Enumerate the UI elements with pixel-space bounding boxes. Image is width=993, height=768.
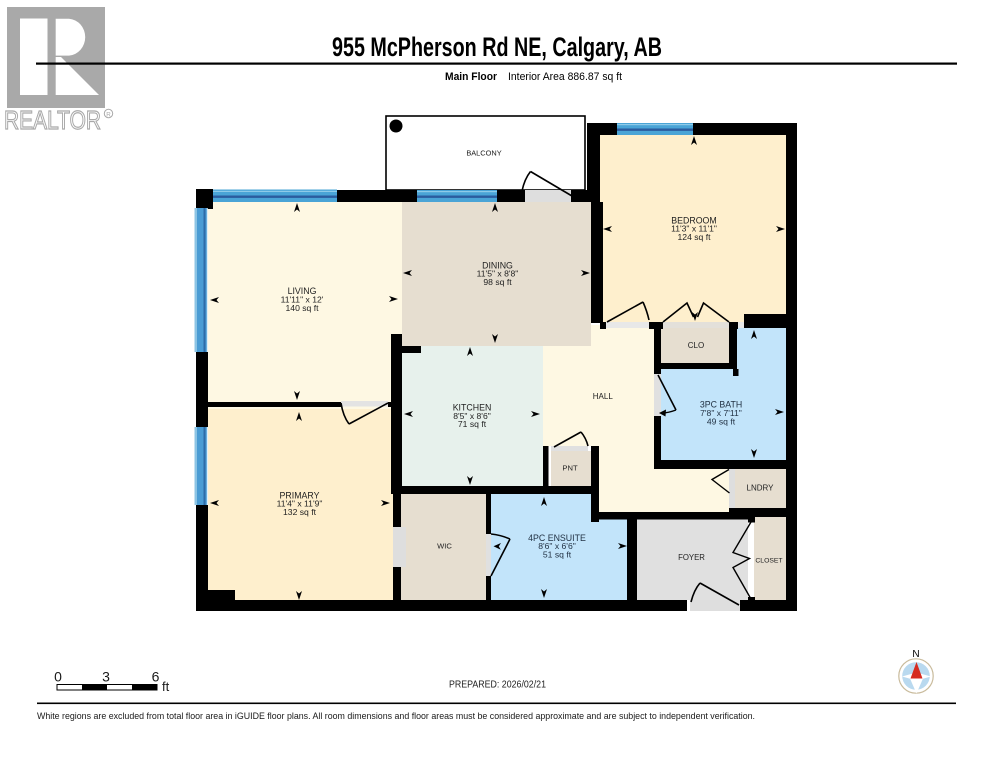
svg-text:PNT: PNT xyxy=(562,464,578,473)
svg-text:REALTOR: REALTOR xyxy=(4,105,101,135)
svg-text:HALL: HALL xyxy=(593,392,614,401)
svg-text:White regions are excluded fro: White regions are excluded from total fl… xyxy=(37,711,755,721)
svg-text:FOYER: FOYER xyxy=(678,553,705,562)
svg-text:49 sq ft: 49 sq ft xyxy=(707,416,736,426)
svg-text:Main Floor: Main Floor xyxy=(445,71,498,83)
svg-text:R: R xyxy=(106,111,111,118)
svg-text:CLO: CLO xyxy=(688,341,704,350)
svg-text:132 sq ft: 132 sq ft xyxy=(283,507,317,517)
svg-text:124 sq ft: 124 sq ft xyxy=(678,232,712,242)
svg-text:WIC: WIC xyxy=(437,542,452,551)
svg-text:PREPARED: 2026/02/21: PREPARED: 2026/02/21 xyxy=(449,680,546,691)
svg-text:ft: ft xyxy=(162,679,170,694)
svg-text:51 sq ft: 51 sq ft xyxy=(543,549,572,559)
svg-text:71 sq ft: 71 sq ft xyxy=(458,419,487,429)
svg-text:98 sq ft: 98 sq ft xyxy=(483,277,512,287)
svg-text:0: 0 xyxy=(54,669,62,685)
svg-text:CLOSET: CLOSET xyxy=(755,558,782,565)
svg-text:3: 3 xyxy=(102,669,110,685)
svg-text:Interior Area 886.87 sq ft: Interior Area 886.87 sq ft xyxy=(508,71,622,83)
svg-text:140 sq ft: 140 sq ft xyxy=(286,303,320,313)
svg-text:LNDRY: LNDRY xyxy=(747,484,775,493)
svg-text:BALCONY: BALCONY xyxy=(466,149,501,158)
svg-text:6: 6 xyxy=(152,669,160,685)
svg-text:955 McPherson Rd NE, Calgary,: 955 McPherson Rd NE, Calgary, AB xyxy=(332,32,662,62)
